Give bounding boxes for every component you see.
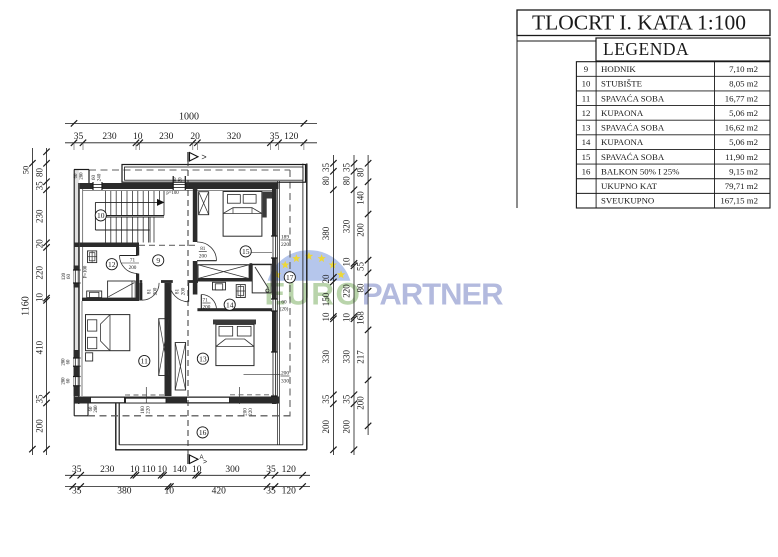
svg-text:80: 80: [34, 168, 44, 178]
svg-text:15: 15: [242, 247, 250, 256]
svg-text:>: >: [203, 459, 207, 466]
svg-text:10: 10: [133, 132, 143, 142]
svg-text:10: 10: [341, 313, 351, 323]
svg-text:120: 120: [282, 465, 297, 475]
svg-text:35: 35: [341, 394, 351, 404]
svg-text:13: 13: [199, 354, 207, 363]
svg-text:220: 220: [281, 242, 289, 248]
svg-text:5,06 m2: 5,06 m2: [729, 108, 758, 118]
svg-text:HODNIK: HODNIK: [601, 64, 636, 74]
svg-text:189: 189: [281, 235, 289, 241]
svg-text:140: 140: [356, 191, 366, 205]
svg-text:9: 9: [156, 256, 160, 265]
svg-text:16: 16: [199, 428, 207, 437]
svg-text:320: 320: [341, 219, 351, 233]
svg-text:380: 380: [117, 487, 132, 497]
svg-text:16,62 m2: 16,62 m2: [725, 123, 758, 133]
svg-text:12: 12: [582, 108, 591, 118]
svg-text:>: >: [201, 152, 206, 162]
svg-text:10: 10: [130, 465, 140, 475]
svg-text:LEGENDA: LEGENDA: [603, 39, 689, 59]
svg-text:PARTNER: PARTNER: [362, 277, 503, 312]
svg-text:320: 320: [227, 132, 242, 142]
svg-text:SPAVAĆA SOBA: SPAVAĆA SOBA: [601, 123, 665, 133]
svg-text:200: 200: [341, 419, 351, 433]
svg-text:9,15 m2: 9,15 m2: [729, 166, 758, 176]
svg-text:10: 10: [321, 312, 331, 322]
svg-text:35: 35: [270, 132, 280, 142]
svg-text:13: 13: [582, 123, 591, 133]
svg-text:380: 380: [321, 226, 331, 240]
svg-text:120: 120: [284, 132, 299, 142]
svg-text:330: 330: [341, 349, 351, 363]
svg-text:10: 10: [582, 79, 591, 89]
svg-text:280: 280: [80, 172, 85, 180]
svg-text:50: 50: [21, 166, 31, 175]
svg-text:80: 80: [341, 176, 351, 186]
svg-text:200: 200: [129, 265, 137, 271]
svg-text:120: 120: [282, 487, 297, 497]
svg-text:1160: 1160: [21, 296, 32, 316]
svg-text:80: 80: [356, 168, 366, 178]
svg-text:1000: 1000: [179, 112, 199, 123]
svg-text:8,05 m2: 8,05 m2: [729, 79, 758, 89]
svg-text:(20): (20): [280, 306, 289, 313]
svg-text:330: 330: [321, 350, 331, 364]
svg-text:35: 35: [266, 487, 276, 497]
svg-text:9: 9: [584, 64, 589, 74]
svg-text:SPAVAĆA SOBA: SPAVAĆA SOBA: [601, 93, 665, 103]
svg-text:200: 200: [153, 287, 159, 295]
svg-text:TLOCRT I. KATA 1:100: TLOCRT I. KATA 1:100: [532, 11, 746, 35]
svg-text:60: 60: [67, 359, 72, 364]
svg-text:280: 280: [62, 358, 67, 366]
svg-text:UKUPNO KAT: UKUPNO KAT: [601, 181, 658, 191]
svg-text:35: 35: [34, 394, 44, 404]
svg-text:35: 35: [341, 163, 351, 173]
svg-text:5,06 m2: 5,06 m2: [729, 137, 758, 147]
svg-text:220: 220: [341, 284, 351, 298]
svg-text:60: 60: [281, 300, 287, 306]
svg-text:20: 20: [178, 177, 184, 183]
svg-text:10: 10: [192, 465, 202, 475]
svg-text:140: 140: [172, 465, 187, 475]
svg-text:220: 220: [248, 408, 254, 416]
svg-text:230: 230: [100, 465, 115, 475]
svg-text:300: 300: [225, 465, 240, 475]
svg-text:150: 150: [321, 292, 331, 306]
svg-text:60: 60: [66, 274, 72, 280]
svg-text:10: 10: [164, 487, 174, 497]
svg-text:16: 16: [582, 166, 591, 176]
svg-text:80: 80: [356, 283, 366, 293]
svg-text:35: 35: [34, 181, 44, 191]
svg-text:81: 81: [200, 246, 206, 252]
svg-text:220: 220: [34, 265, 44, 279]
svg-text:35: 35: [72, 487, 82, 497]
svg-text:330: 330: [281, 379, 289, 385]
svg-text:71: 71: [203, 298, 209, 304]
svg-text:200: 200: [203, 305, 211, 311]
svg-text:167,15 m2: 167,15 m2: [720, 196, 758, 206]
svg-text:200: 200: [356, 223, 366, 237]
svg-text:71: 71: [130, 258, 136, 264]
svg-text:20: 20: [321, 274, 331, 284]
svg-text:35: 35: [266, 465, 276, 475]
svg-text:35: 35: [321, 394, 331, 404]
svg-text:SVEUKUPNO: SVEUKUPNO: [601, 196, 654, 206]
svg-text:220: 220: [146, 406, 152, 414]
svg-text:KUPAONA: KUPAONA: [601, 108, 644, 118]
svg-text:200: 200: [34, 419, 44, 433]
svg-text:79,71 m2: 79,71 m2: [725, 181, 758, 191]
svg-text:20: 20: [34, 239, 44, 249]
svg-text:14: 14: [226, 300, 234, 309]
svg-text:BALKON 50% I 25%: BALKON 50% I 25%: [601, 166, 680, 176]
svg-text:168: 168: [356, 311, 366, 325]
svg-text:7,10 m2: 7,10 m2: [729, 64, 758, 74]
svg-text:12: 12: [108, 260, 116, 269]
svg-text:11: 11: [582, 93, 590, 103]
svg-text:55: 55: [356, 262, 366, 272]
svg-text:230: 230: [34, 209, 44, 223]
svg-text:SPAVAĆA SOBA: SPAVAĆA SOBA: [601, 152, 665, 162]
svg-text:p=100: p=100: [166, 191, 179, 196]
svg-text:P=100: P=100: [84, 265, 89, 278]
svg-text:10: 10: [97, 211, 105, 220]
svg-text:10: 10: [34, 293, 44, 303]
svg-text:410: 410: [34, 340, 44, 354]
svg-text:35: 35: [74, 132, 84, 142]
svg-text:60: 60: [67, 378, 72, 383]
svg-text:230: 230: [102, 132, 117, 142]
svg-text:15: 15: [582, 152, 591, 162]
svg-text:280: 280: [62, 377, 67, 385]
svg-text:20: 20: [190, 132, 200, 142]
svg-text:11: 11: [141, 357, 148, 366]
svg-text:420: 420: [212, 487, 227, 497]
svg-text:35: 35: [321, 163, 331, 173]
svg-text:10: 10: [158, 465, 168, 475]
svg-text:217: 217: [356, 350, 366, 364]
svg-text:200: 200: [281, 371, 289, 377]
svg-text:230: 230: [159, 132, 174, 142]
svg-text:60: 60: [74, 173, 79, 178]
svg-text:17: 17: [286, 273, 294, 282]
svg-text:110: 110: [142, 465, 156, 475]
svg-text:200: 200: [356, 396, 366, 410]
svg-text:280: 280: [94, 405, 99, 413]
svg-text:16,77 m2: 16,77 m2: [725, 93, 758, 103]
svg-text:35: 35: [72, 465, 82, 475]
svg-text:STUBIŠTE: STUBIŠTE: [601, 79, 642, 89]
svg-text:120: 120: [62, 272, 67, 280]
svg-text:KUPAONA: KUPAONA: [601, 137, 644, 147]
svg-text:14: 14: [582, 137, 591, 147]
svg-text:240: 240: [96, 173, 102, 181]
svg-text:200: 200: [181, 287, 187, 295]
svg-text:80: 80: [321, 176, 331, 186]
svg-text:11,90 m2: 11,90 m2: [725, 152, 758, 162]
svg-text:200: 200: [199, 254, 207, 260]
svg-text:10: 10: [341, 257, 351, 267]
svg-text:200: 200: [321, 420, 331, 434]
